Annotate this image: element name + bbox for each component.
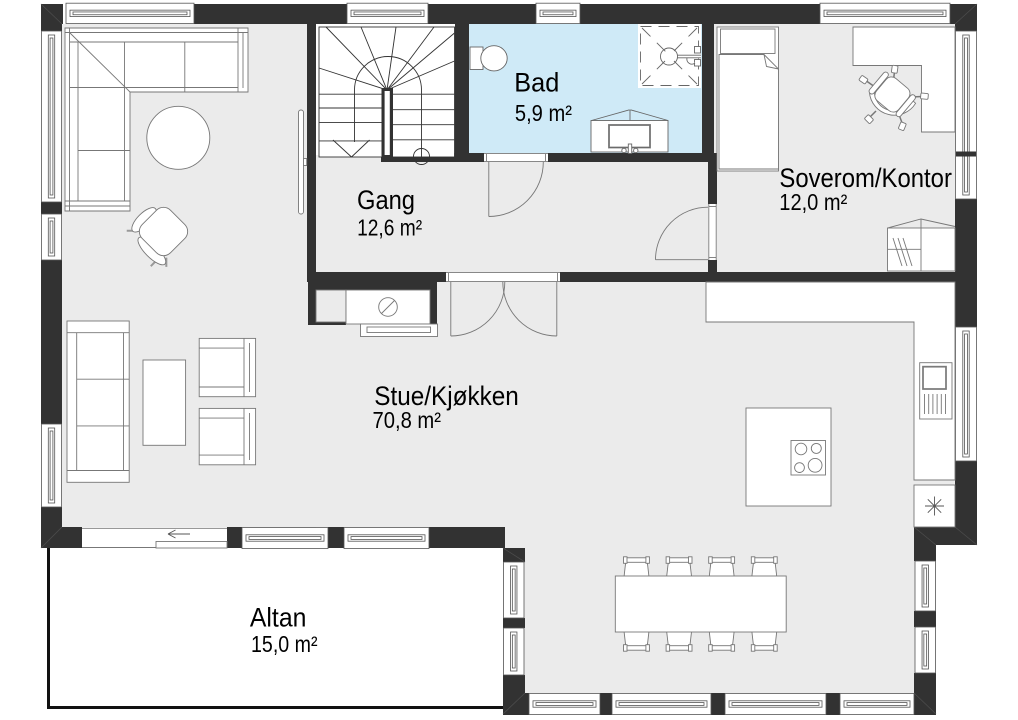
svg-text:12,6 m²: 12,6 m² (357, 215, 422, 241)
svg-text:12,0 m²: 12,0 m² (779, 189, 847, 215)
svg-text:Gang: Gang (357, 185, 415, 215)
svg-text:Bad: Bad (514, 68, 559, 98)
svg-text:15,0 m²: 15,0 m² (251, 631, 318, 657)
svg-text:Altan: Altan (250, 603, 307, 633)
svg-text:70,8 m²: 70,8 m² (373, 407, 442, 433)
svg-text:5,9 m²: 5,9 m² (515, 100, 572, 126)
